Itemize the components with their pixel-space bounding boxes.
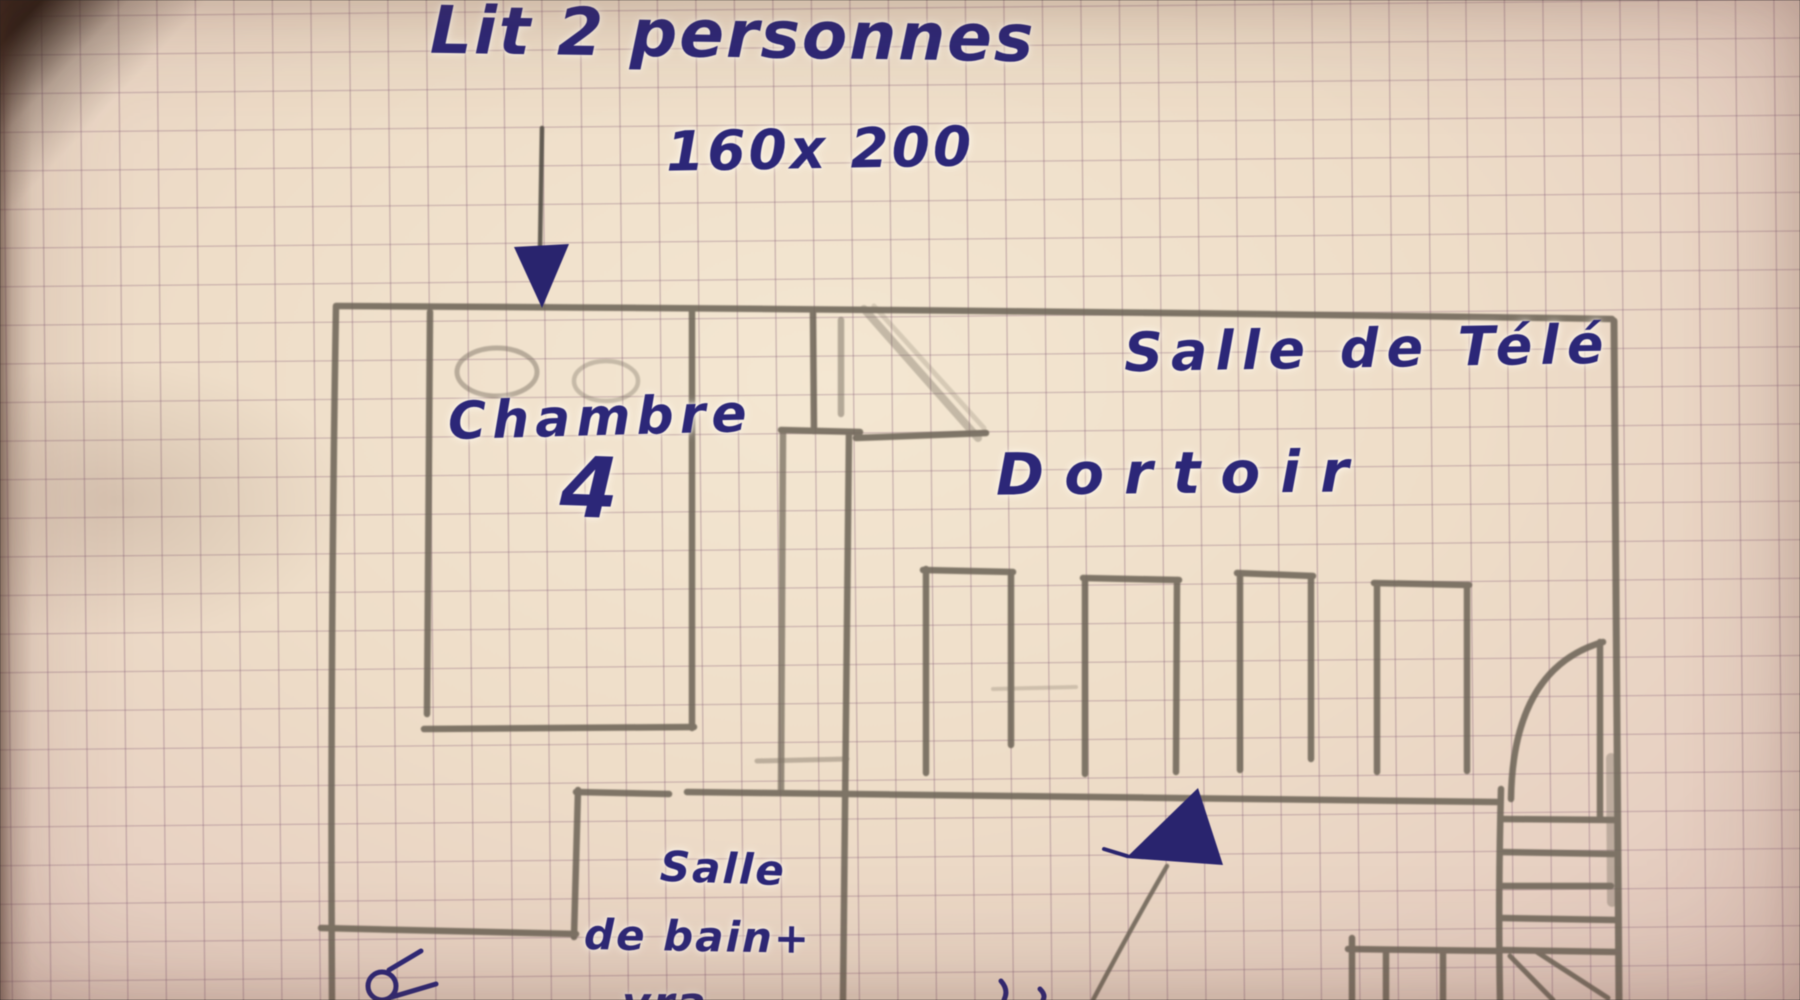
bed-note-line2: 160x 200 [666, 119, 975, 179]
room-label-chambre-number: 4 [559, 445, 620, 531]
wall-corridor-left [576, 792, 669, 794]
wall-right-thick [1611, 758, 1612, 902]
wall-left [332, 306, 337, 1000]
down-arrow-shaft [540, 128, 542, 250]
room-label-bath-line1: Salle [659, 846, 786, 892]
dortoir-bed-stall [923, 569, 1076, 773]
bottom-steps [1348, 938, 1500, 1000]
floor-plan-photo: Lit 2 personnes 160x 200 Chambre 4 Salle… [0, 0, 1800, 1000]
ink-fragment [1001, 981, 1044, 1000]
dortoir-bed-stall [1374, 583, 1469, 772]
room-label-salle-de-tele: Salle de Télé [1124, 318, 1612, 380]
room-label-bath-line3: vra [622, 982, 708, 1000]
dortoir-bed-stall [1083, 578, 1179, 774]
room-label-dortoir: Dortoir [996, 442, 1369, 503]
pillow-icon [457, 348, 537, 396]
spiral-staircase [1499, 642, 1617, 1000]
wall-corridor [687, 792, 1497, 802]
down-arrow-icon [514, 244, 569, 308]
up-arrow-shaft [1093, 866, 1167, 1000]
closet-walls [757, 313, 860, 1000]
circle-slash-icon [368, 951, 436, 1000]
bed-note-line1: Lit 2 personnes [430, 0, 1036, 72]
wall-chambre-bottom [321, 928, 576, 934]
room-label-bath-line2: de bain+ [584, 914, 812, 960]
wall-bath-vertical [574, 790, 578, 937]
dortoir-bed-stall [1237, 573, 1313, 770]
door-swing [856, 306, 986, 438]
